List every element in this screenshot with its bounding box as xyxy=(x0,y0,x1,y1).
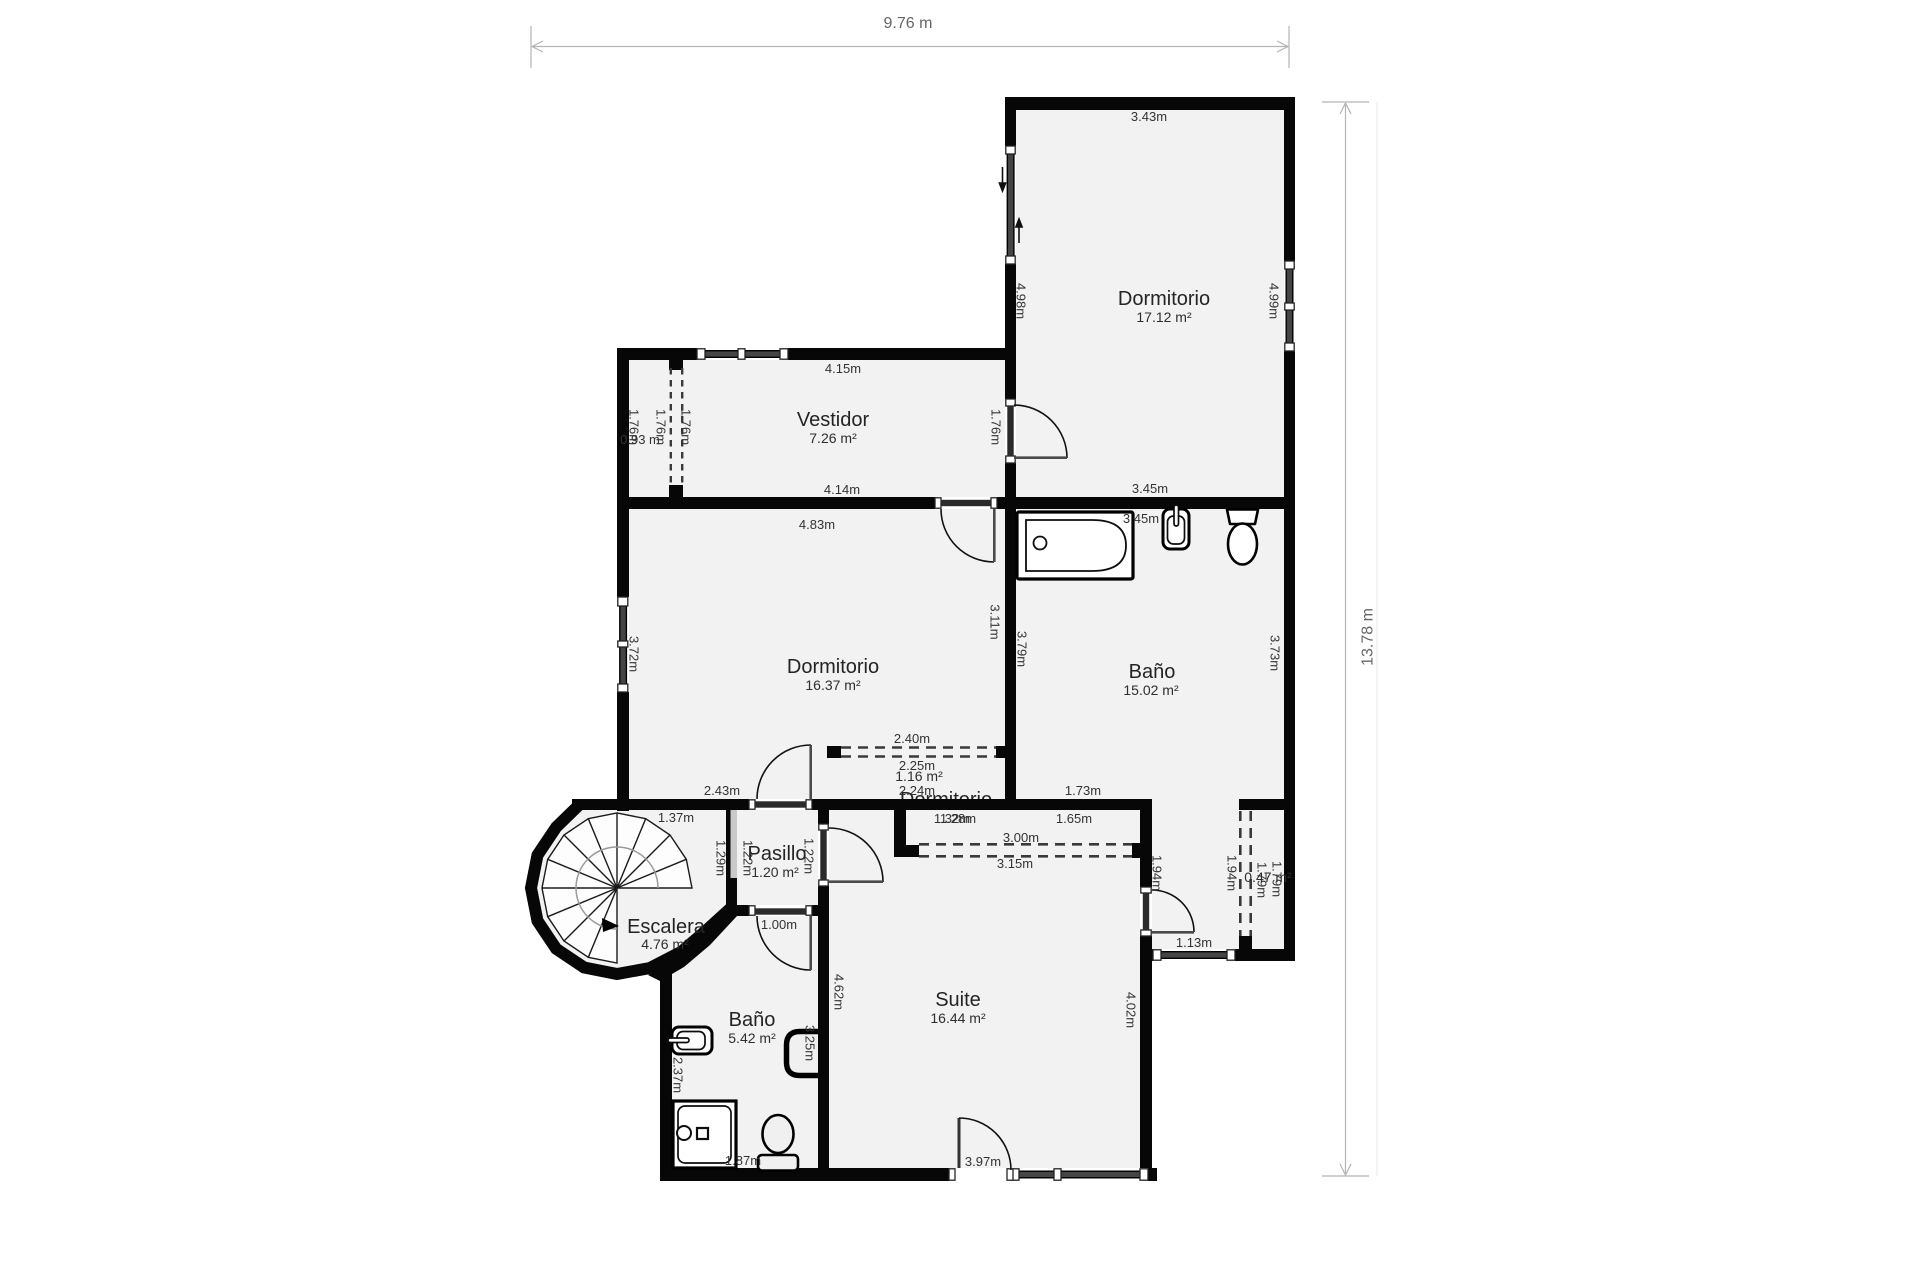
svg-text:2.24m: 2.24m xyxy=(899,783,935,798)
svg-text:1.76m: 1.76m xyxy=(627,409,642,445)
svg-text:3.00m: 3.00m xyxy=(1003,830,1039,845)
svg-text:3.45m: 3.45m xyxy=(1123,511,1159,526)
svg-text:Dormitorio: Dormitorio xyxy=(787,656,879,678)
svg-text:2.40m: 2.40m xyxy=(894,731,930,746)
svg-text:Dormitorio: Dormitorio xyxy=(1118,288,1210,310)
svg-text:1.73m: 1.73m xyxy=(1065,783,1101,798)
svg-text:Vestidor: Vestidor xyxy=(797,409,870,431)
svg-text:Baño: Baño xyxy=(729,1009,776,1031)
svg-text:1.00m: 1.00m xyxy=(761,917,797,932)
svg-text:3.45m: 3.45m xyxy=(1132,481,1168,496)
svg-text:3.15m: 3.15m xyxy=(997,856,1033,871)
svg-text:4.15m: 4.15m xyxy=(825,361,861,376)
svg-text:1.76m: 1.76m xyxy=(654,409,669,445)
svg-text:3.79m: 3.79m xyxy=(1015,631,1030,667)
svg-text:1.65m: 1.65m xyxy=(1056,811,1092,826)
svg-text:Suite: Suite xyxy=(935,989,981,1011)
svg-text:4.14m: 4.14m xyxy=(824,482,860,497)
svg-text:1.87m: 1.87m xyxy=(725,1153,761,1168)
svg-text:16.37 m²: 16.37 m² xyxy=(805,677,861,693)
svg-text:4.76 m²: 4.76 m² xyxy=(641,936,689,952)
svg-text:4.02m: 4.02m xyxy=(1124,992,1139,1028)
svg-text:1.76m: 1.76m xyxy=(989,409,1004,445)
svg-text:3.72m: 3.72m xyxy=(627,636,642,672)
svg-text:Escalera: Escalera xyxy=(627,916,706,938)
svg-text:3.11m: 3.11m xyxy=(988,604,1003,639)
svg-text:4.98m: 4.98m xyxy=(1014,283,1029,319)
svg-text:13.78 m: 13.78 m xyxy=(1360,608,1377,666)
svg-text:4.62m: 4.62m xyxy=(832,974,847,1010)
svg-text:4.83m: 4.83m xyxy=(799,517,835,532)
svg-text:9.76 m: 9.76 m xyxy=(884,15,933,32)
svg-text:3.73m: 3.73m xyxy=(1268,635,1283,671)
svg-text:1.79m: 1.79m xyxy=(1255,862,1270,898)
svg-text:1.28m: 1.28m xyxy=(940,811,976,826)
svg-text:Baño: Baño xyxy=(1129,661,1176,683)
svg-text:7.26 m²: 7.26 m² xyxy=(809,430,857,446)
svg-text:4.99m: 4.99m xyxy=(1267,283,1282,319)
svg-text:1.94m: 1.94m xyxy=(1225,855,1240,891)
svg-text:2.25m: 2.25m xyxy=(899,758,935,773)
svg-text:3.25m: 3.25m xyxy=(803,1025,818,1061)
svg-text:1.22m: 1.22m xyxy=(802,838,817,874)
svg-text:1.20 m²: 1.20 m² xyxy=(751,864,799,880)
svg-text:16.44 m²: 16.44 m² xyxy=(930,1010,986,1026)
svg-text:1.22m: 1.22m xyxy=(741,840,756,876)
svg-text:1.94m: 1.94m xyxy=(1150,855,1165,891)
svg-text:1.37m: 1.37m xyxy=(658,810,694,825)
svg-text:2.43m: 2.43m xyxy=(704,783,740,798)
svg-text:15.02 m²: 15.02 m² xyxy=(1123,682,1179,698)
svg-text:3.43m: 3.43m xyxy=(1131,109,1167,124)
svg-text:3.97m: 3.97m xyxy=(965,1154,1001,1169)
svg-text:2.37m: 2.37m xyxy=(671,1057,686,1093)
svg-text:1.76m: 1.76m xyxy=(679,409,694,445)
svg-text:1.79m: 1.79m xyxy=(1270,861,1285,897)
svg-text:5.42 m²: 5.42 m² xyxy=(728,1030,776,1046)
svg-text:17.12 m²: 17.12 m² xyxy=(1136,309,1192,325)
svg-text:1.29m: 1.29m xyxy=(714,840,729,876)
svg-text:1.13m: 1.13m xyxy=(1176,935,1212,950)
